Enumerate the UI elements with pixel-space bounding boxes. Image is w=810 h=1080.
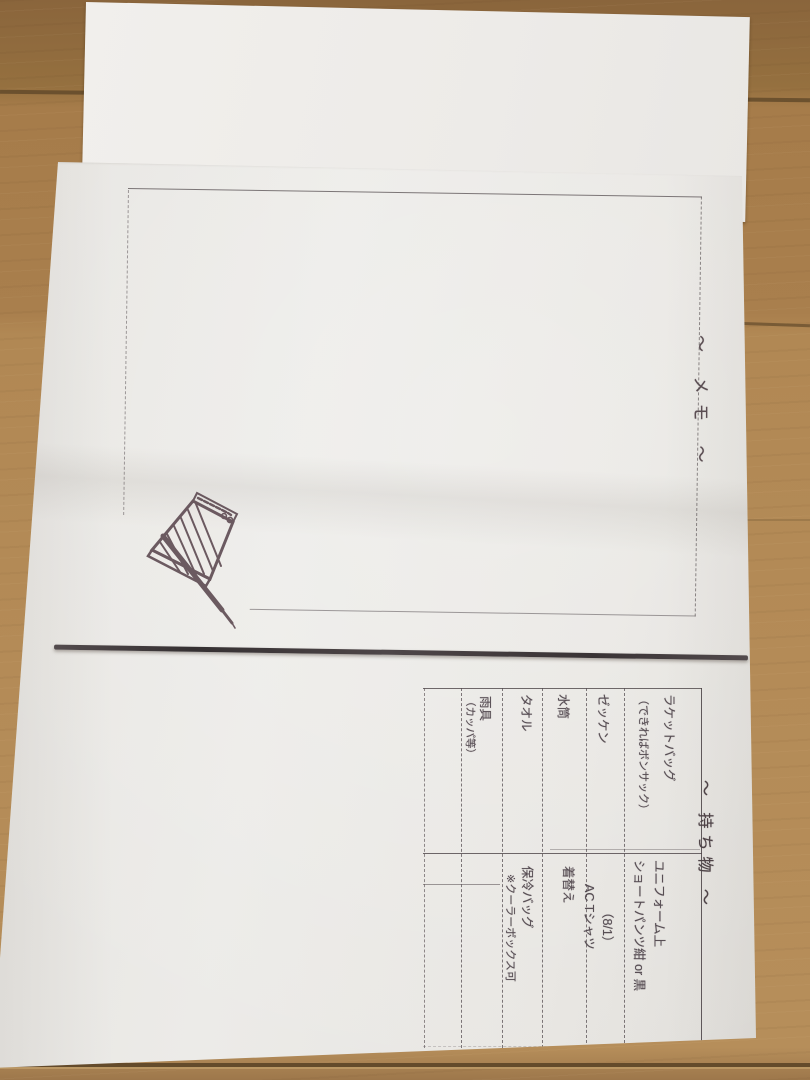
table-border <box>701 688 702 1048</box>
table-row-separator <box>461 688 462 1048</box>
photo-of-handout: 〜 メモ 〜 <box>0 0 810 1080</box>
table-column-separator-ghost <box>550 849 700 850</box>
table-cell-text: （カッパ等） <box>463 696 478 759</box>
notepad-pencil-stamp-icon <box>136 476 248 648</box>
table-cell-text: ショートパンツ紺 or 黒 <box>631 860 650 991</box>
table-cell-text: ラケットバッグ <box>661 694 680 782</box>
floor-seam-highlight <box>0 1067 810 1069</box>
table-cell-text: AC Tシャツ <box>581 884 600 950</box>
table-cell-text: （8/1） <box>599 906 618 948</box>
table-column-separator <box>423 853 702 854</box>
table-row-separator <box>502 688 503 1048</box>
floor-plank-joint <box>742 519 810 521</box>
table-row-separator <box>542 688 543 1048</box>
table-cell-text: 着替え <box>560 866 579 904</box>
belongings-table: ラケットバッグ （できればボンサック） ユニフォーム上 ショートパンツ紺 or … <box>423 688 702 1048</box>
table-border <box>423 688 702 689</box>
table-cell-text: ユニフォーム上 <box>651 860 670 947</box>
table-row-separator <box>624 688 625 1048</box>
table-cell-text: 雨具 <box>477 696 496 721</box>
table-cell-text: タオル <box>518 694 537 732</box>
table-row-separator <box>586 688 587 1048</box>
table-cell-text: 水筒 <box>555 694 574 719</box>
table-cell-text: ※クーラーボックス可 <box>503 874 519 982</box>
table-border <box>424 688 425 1048</box>
table-cell-text: （できればボンサック） <box>636 694 652 815</box>
table-cell-text: ゼッケン <box>595 694 614 744</box>
table-cell-text: 保冷バッグ <box>519 866 538 929</box>
